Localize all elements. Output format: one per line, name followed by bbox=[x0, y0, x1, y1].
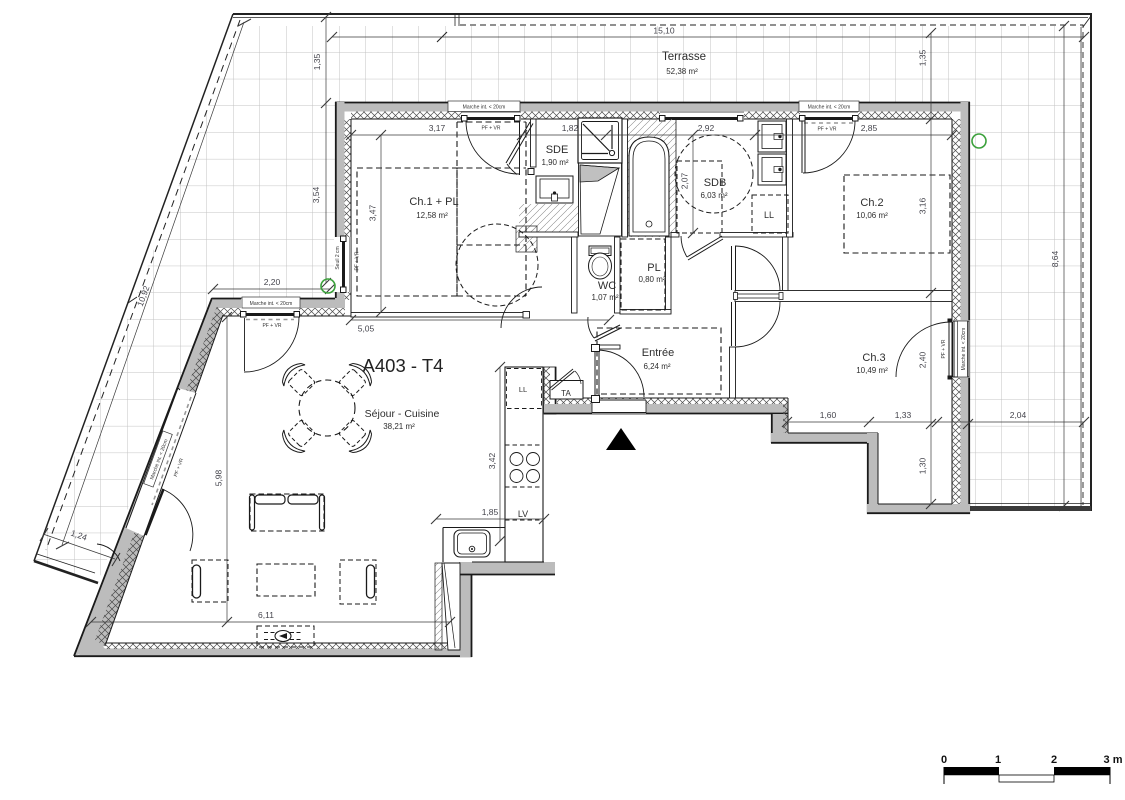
svg-text:12,58 m²: 12,58 m² bbox=[416, 211, 448, 220]
svg-text:2,40: 2,40 bbox=[918, 351, 928, 368]
svg-text:LV: LV bbox=[518, 509, 528, 519]
svg-text:1: 1 bbox=[995, 754, 1001, 766]
svg-text:1,35: 1,35 bbox=[312, 53, 322, 70]
svg-text:PF + VR: PF + VR bbox=[941, 339, 947, 358]
svg-text:2,07: 2,07 bbox=[680, 172, 690, 189]
svg-text:1,82: 1,82 bbox=[562, 123, 579, 133]
svg-text:3,17: 3,17 bbox=[429, 123, 446, 133]
svg-text:8,64: 8,64 bbox=[1050, 250, 1060, 267]
svg-text:6,11: 6,11 bbox=[258, 610, 274, 620]
svg-text:15,10: 15,10 bbox=[653, 26, 675, 36]
svg-text:Ch.1 + PL: Ch.1 + PL bbox=[409, 196, 458, 208]
svg-text:2,04: 2,04 bbox=[1010, 410, 1027, 420]
svg-text:PF + VR: PF + VR bbox=[817, 127, 836, 133]
svg-text:6,24 m²: 6,24 m² bbox=[643, 362, 670, 371]
svg-text:1,90 m²: 1,90 m² bbox=[541, 158, 568, 167]
svg-text:10,49 m²: 10,49 m² bbox=[856, 366, 888, 375]
svg-text:2,92: 2,92 bbox=[698, 123, 715, 133]
svg-text:5,05: 5,05 bbox=[358, 324, 375, 334]
svg-text:1,85: 1,85 bbox=[482, 507, 499, 517]
svg-text:PF + VR: PF + VR bbox=[262, 323, 281, 329]
svg-text:Marche int. < 20cm: Marche int. < 20cm bbox=[808, 105, 851, 111]
svg-text:TA: TA bbox=[561, 389, 571, 398]
svg-text:LL: LL bbox=[764, 210, 774, 220]
svg-text:Ch.3: Ch.3 bbox=[862, 352, 885, 364]
svg-text:3,47: 3,47 bbox=[368, 204, 378, 221]
svg-text:A403 - T4: A403 - T4 bbox=[363, 355, 444, 376]
svg-text:Ch.2: Ch.2 bbox=[860, 197, 883, 209]
svg-text:3,16: 3,16 bbox=[918, 197, 928, 214]
svg-text:3,54: 3,54 bbox=[311, 186, 321, 203]
svg-text:2,20: 2,20 bbox=[264, 277, 281, 287]
svg-text:3,42: 3,42 bbox=[487, 452, 497, 469]
svg-text:38,21 m²: 38,21 m² bbox=[383, 422, 415, 431]
svg-text:1,30: 1,30 bbox=[918, 457, 928, 474]
svg-text:2,85: 2,85 bbox=[861, 123, 878, 133]
svg-text:6,03 m²: 6,03 m² bbox=[700, 191, 727, 200]
svg-text:WC: WC bbox=[598, 280, 616, 292]
svg-text:5,98: 5,98 bbox=[214, 469, 224, 486]
svg-text:0,80 m²: 0,80 m² bbox=[638, 275, 665, 284]
svg-text:1,35: 1,35 bbox=[918, 49, 928, 66]
svg-text:Marche int. < 20cm: Marche int. < 20cm bbox=[463, 105, 506, 111]
svg-text:Entrée: Entrée bbox=[642, 347, 674, 359]
svg-text:LL: LL bbox=[519, 385, 527, 394]
svg-text:SDB: SDB bbox=[704, 177, 727, 189]
svg-text:2: 2 bbox=[1051, 754, 1057, 766]
svg-text:3 m: 3 m bbox=[1104, 754, 1123, 766]
svg-text:Seuil 2 cm: Seuil 2 cm bbox=[335, 246, 341, 269]
svg-text:10,06 m²: 10,06 m² bbox=[856, 211, 888, 220]
svg-text:1,60: 1,60 bbox=[820, 410, 837, 420]
svg-text:1,33: 1,33 bbox=[895, 410, 912, 420]
svg-text:Marche int. < 20cm: Marche int. < 20cm bbox=[250, 301, 293, 307]
svg-text:0: 0 bbox=[941, 754, 947, 766]
svg-text:PL: PL bbox=[647, 262, 660, 274]
svg-text:Marche int. < 20cm: Marche int. < 20cm bbox=[961, 328, 967, 371]
svg-text:Terrasse: Terrasse bbox=[662, 51, 706, 63]
svg-text:PF + VR: PF + VR bbox=[481, 126, 500, 132]
svg-text:SDE: SDE bbox=[546, 144, 569, 156]
svg-text:Séjour - Cuisine: Séjour - Cuisine bbox=[365, 408, 440, 420]
svg-text:1,07 m²: 1,07 m² bbox=[591, 293, 618, 302]
svg-text:52,38 m²: 52,38 m² bbox=[666, 67, 698, 76]
